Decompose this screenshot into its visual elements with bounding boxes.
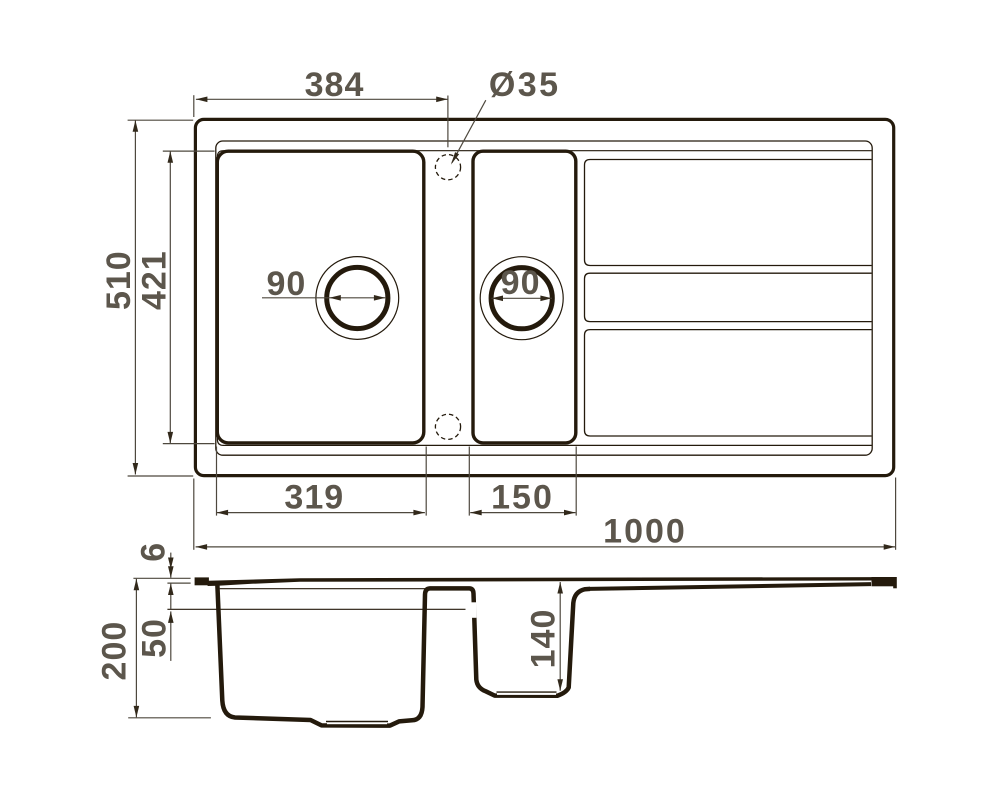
svg-text:319: 319 <box>284 478 344 516</box>
svg-text:1000: 1000 <box>603 513 687 551</box>
svg-text:Ø35: Ø35 <box>489 66 561 104</box>
svg-text:6: 6 <box>135 542 173 562</box>
svg-text:50: 50 <box>136 618 174 658</box>
svg-text:421: 421 <box>135 250 173 310</box>
svg-text:510: 510 <box>100 250 138 310</box>
svg-text:90: 90 <box>266 265 306 303</box>
svg-text:384: 384 <box>305 66 365 104</box>
svg-text:90: 90 <box>501 264 541 302</box>
svg-text:200: 200 <box>96 621 134 681</box>
svg-text:150: 150 <box>491 478 554 516</box>
svg-text:140: 140 <box>524 609 562 669</box>
